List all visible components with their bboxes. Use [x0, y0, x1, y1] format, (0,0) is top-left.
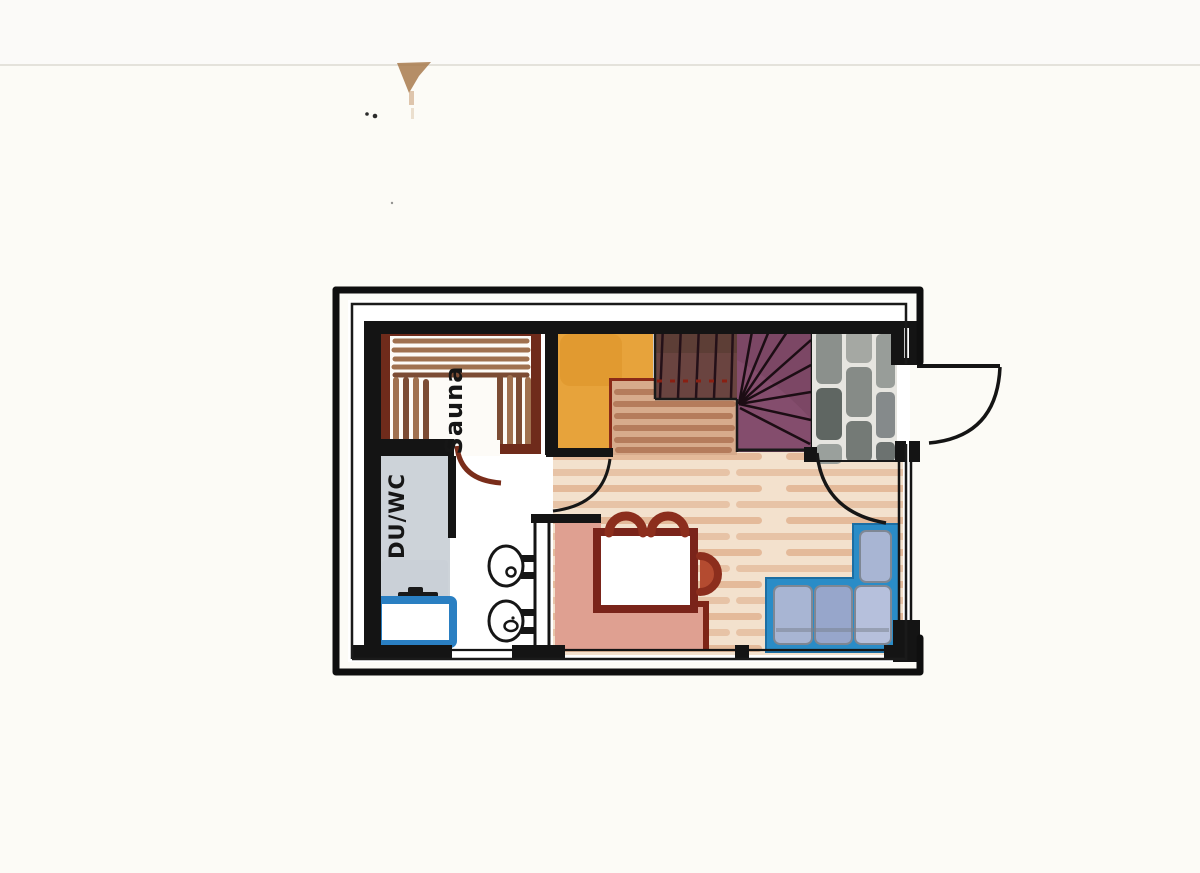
sofa-arm-cushion [860, 531, 891, 582]
chair-right [700, 556, 718, 592]
paper-top-strip [0, 0, 1200, 64]
floor-plan-drawing: Sauna DU/WC [0, 0, 1200, 873]
wall-hall-west [545, 325, 558, 455]
sofa-cushion-2 [815, 586, 852, 644]
wall-stub-under-landing [546, 448, 613, 457]
stairs-upper-flight [655, 325, 737, 400]
du-wc-label: DU/WC [385, 473, 409, 559]
sofa-cushion-3 [855, 586, 891, 644]
threshold-post [804, 447, 817, 462]
wall-west [364, 321, 381, 654]
entry-door-post-a [895, 441, 906, 462]
entry-door-post-b [909, 441, 920, 462]
entry-stone-floor [804, 325, 897, 464]
shower-partition [448, 456, 456, 538]
stairs-winders [737, 325, 812, 452]
sauna-label: Sauna [440, 366, 468, 455]
dining-table [597, 532, 694, 609]
wall-north [364, 321, 897, 334]
sofa-cushion-1 [774, 586, 812, 644]
scanned-page: Sauna DU/WC [0, 0, 1200, 873]
wall-stub-dining [531, 514, 601, 523]
